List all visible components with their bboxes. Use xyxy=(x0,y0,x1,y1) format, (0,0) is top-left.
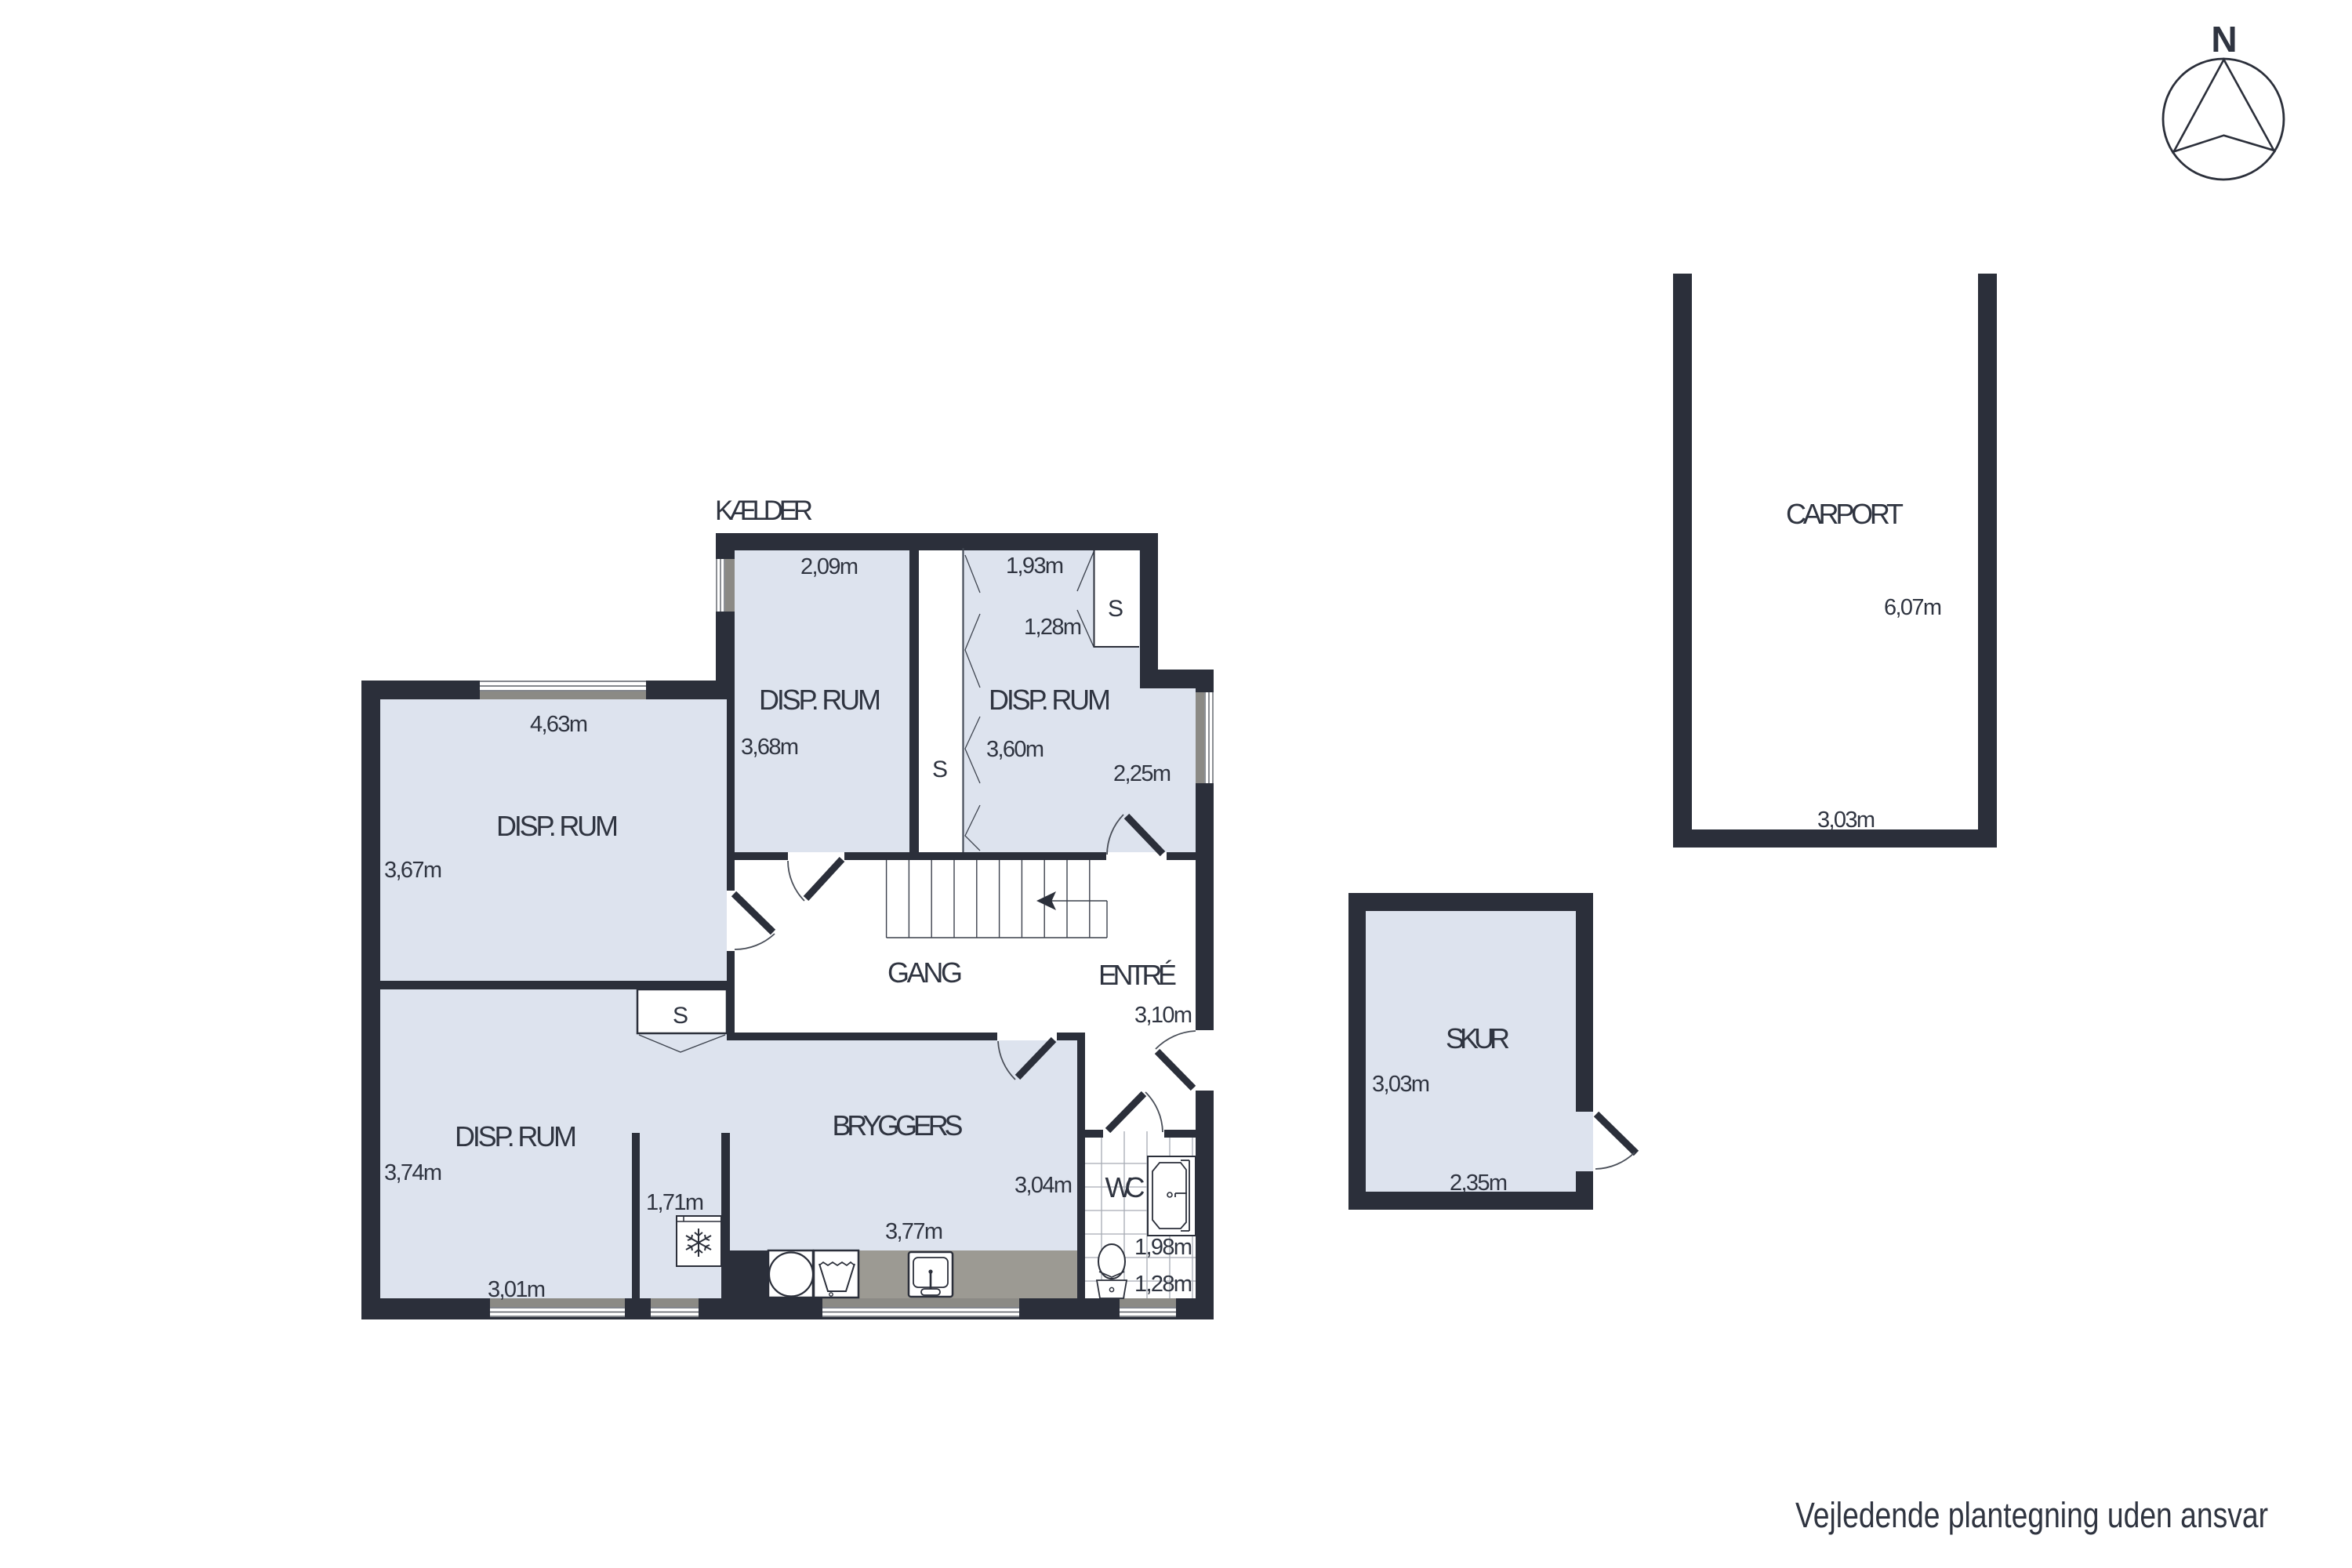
svg-text:S: S xyxy=(1108,596,1123,622)
svg-text:KÆLDER: KÆLDER xyxy=(715,495,814,526)
svg-text:S: S xyxy=(932,757,948,782)
svg-text:S: S xyxy=(673,1003,688,1029)
svg-text:1,28m: 1,28m xyxy=(1024,615,1082,640)
svg-text:DISP. RUM: DISP. RUM xyxy=(989,684,1112,716)
svg-text:2,25m: 2,25m xyxy=(1113,761,1171,786)
svg-text:6,07m: 6,07m xyxy=(1884,595,1942,620)
svg-text:3,77m: 3,77m xyxy=(885,1219,943,1244)
svg-text:ENTRÉ: ENTRÉ xyxy=(1098,959,1178,991)
svg-text:2,09m: 2,09m xyxy=(800,554,858,579)
svg-text:3,03m: 3,03m xyxy=(1817,808,1875,833)
svg-text:3,67m: 3,67m xyxy=(384,858,442,883)
svg-text:DISP. RUM: DISP. RUM xyxy=(496,810,620,842)
svg-text:3,10m: 3,10m xyxy=(1134,1003,1192,1028)
svg-text:4,63m: 4,63m xyxy=(530,712,588,737)
svg-text:1,28m: 1,28m xyxy=(1134,1272,1192,1297)
svg-text:3,01m: 3,01m xyxy=(488,1277,546,1302)
svg-text:CARPORT: CARPORT xyxy=(1786,498,1905,530)
svg-text:Vejledende plantegning uden an: Vejledende plantegning uden ansvar xyxy=(1795,1495,2268,1535)
svg-text:3,68m: 3,68m xyxy=(741,735,799,760)
svg-text:GANG: GANG xyxy=(887,956,964,989)
svg-text:1,98m: 1,98m xyxy=(1134,1235,1192,1260)
svg-text:N: N xyxy=(2211,19,2237,60)
svg-text:DISP. RUM: DISP. RUM xyxy=(759,684,883,716)
svg-text:BRYGGERS: BRYGGERS xyxy=(833,1109,965,1142)
svg-text:SKUR: SKUR xyxy=(1446,1022,1512,1054)
svg-text:2,35m: 2,35m xyxy=(1450,1171,1508,1196)
svg-text:3,04m: 3,04m xyxy=(1014,1173,1073,1198)
svg-text:3,74m: 3,74m xyxy=(384,1160,442,1185)
svg-text:WC: WC xyxy=(1105,1171,1147,1203)
svg-text:1,71m: 1,71m xyxy=(646,1190,704,1215)
svg-text:3,03m: 3,03m xyxy=(1372,1072,1430,1097)
svg-text:3,60m: 3,60m xyxy=(986,737,1044,762)
svg-text:DISP. RUM: DISP. RUM xyxy=(455,1120,579,1152)
svg-text:1,93m: 1,93m xyxy=(1006,554,1064,579)
